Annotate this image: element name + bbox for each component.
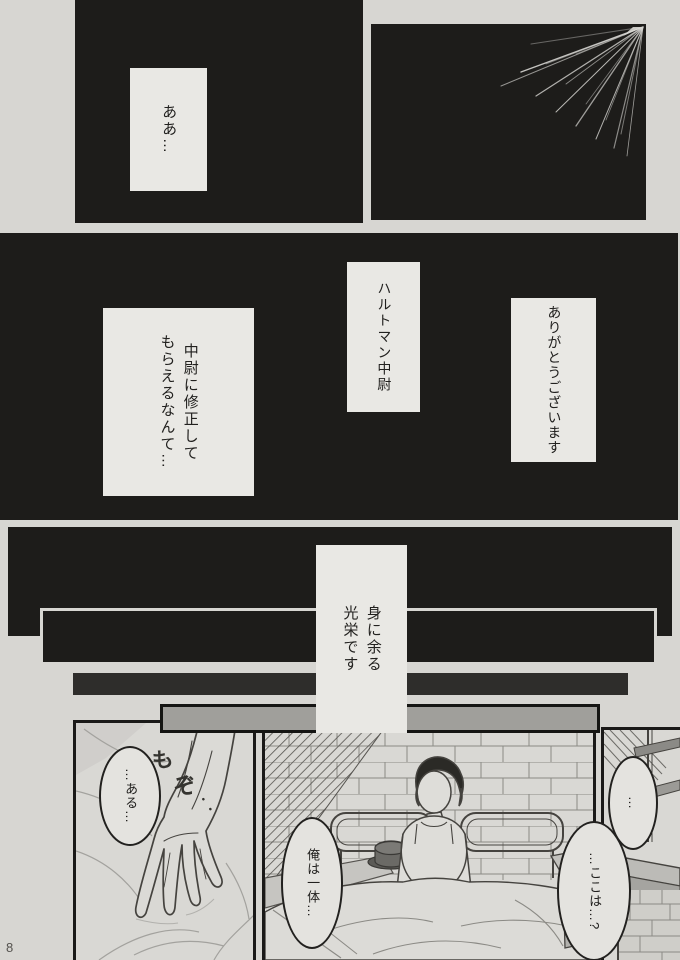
caption-box-shusei: 中尉に修正して もらえるなんて… xyxy=(103,308,254,496)
caption-box-hartmann: ハルトマン中尉 xyxy=(347,262,420,412)
caption-text-arigatou: ありがとうございます xyxy=(543,305,565,455)
bubble-text-dots: … xyxy=(624,796,642,810)
caption-text-hartmann: ハルトマン中尉 xyxy=(373,281,395,393)
caption-box-arigatou: ありがとうございます xyxy=(511,298,596,462)
bubble-ore: 俺は一体… xyxy=(281,817,343,949)
bubble-text-aru: …ある… xyxy=(121,768,139,824)
page-number: 8 xyxy=(6,940,13,955)
caption-text-honor: 身に余る 光栄です xyxy=(338,605,385,673)
caption-text-aa: ああ… xyxy=(157,104,180,155)
panel-middle-black: 中尉に修正して もらえるなんて… ハルトマン中尉 ありがとうございます xyxy=(0,233,678,520)
manga-page: ああ… xyxy=(0,0,680,960)
caption-box-honor: 身に余る 光栄です xyxy=(316,545,407,733)
panel-top-left: ああ… xyxy=(75,0,363,223)
speed-lines-artwork xyxy=(371,24,646,220)
panel-top-right xyxy=(371,24,646,220)
caption-box-aa: ああ… xyxy=(130,68,207,191)
bubble-koko: …ここは…? xyxy=(557,821,631,960)
bubble-text-koko: …ここは…? xyxy=(585,852,603,930)
bubble-text-ore: 俺は一体… xyxy=(303,848,321,918)
caption-text-shusei: 中尉に修正して もらえるなんて… xyxy=(155,334,202,470)
